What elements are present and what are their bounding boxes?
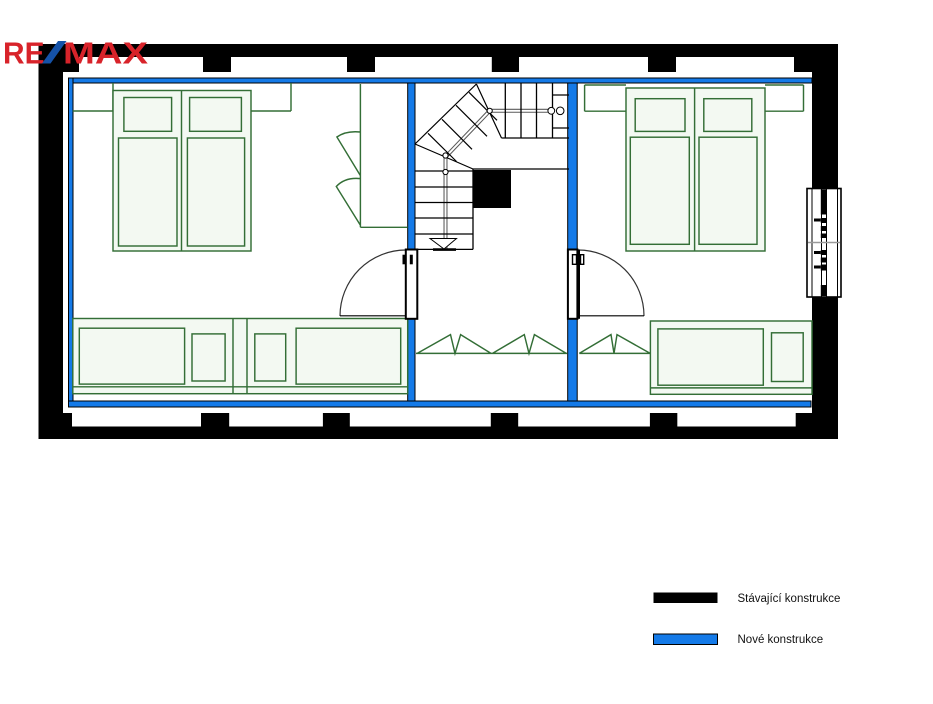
svg-text:MAX: MAX xyxy=(63,35,148,70)
svg-text:RE: RE xyxy=(3,35,45,70)
svg-text:Nové konstrukce: Nové konstrukce xyxy=(738,634,824,646)
svg-text:Stávající konstrukce: Stávající konstrukce xyxy=(738,593,841,605)
